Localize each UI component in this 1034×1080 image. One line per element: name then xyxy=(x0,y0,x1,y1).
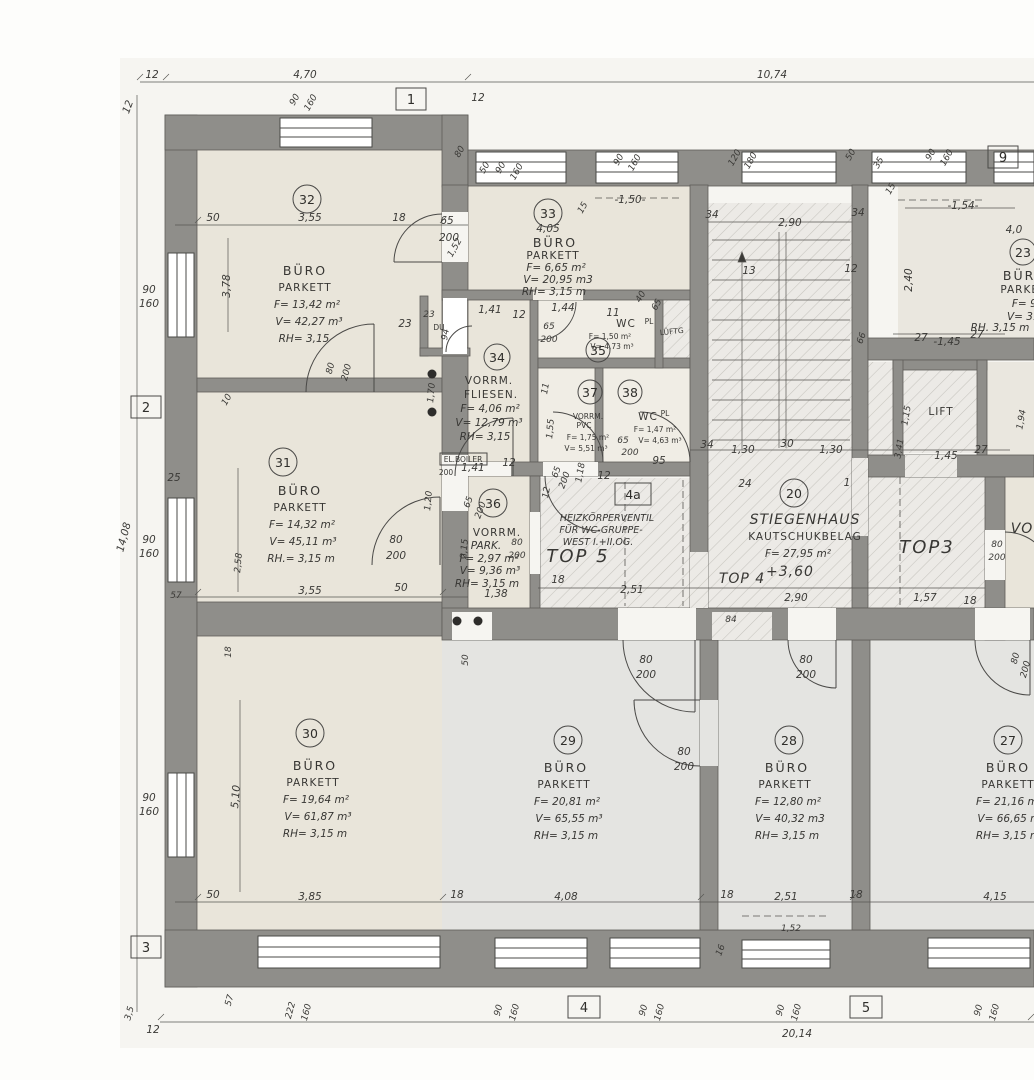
note-line: FÜR WC-GRUPPE- xyxy=(559,525,643,536)
dim-label: -1,50- xyxy=(615,194,646,206)
room-volume: V= 42,27 m³ xyxy=(275,316,342,328)
dim-label: 4,08 xyxy=(554,891,578,903)
door-size-label: 200 xyxy=(988,553,1005,563)
dim-label: 12 xyxy=(597,470,611,482)
room-volume: V= 4,63 m³ xyxy=(638,436,681,445)
room-number: 34 xyxy=(489,350,505,365)
room-area: F= 21,16 m² xyxy=(976,796,1034,808)
boiler-size: 200 xyxy=(439,468,454,477)
dim-label: 57 xyxy=(170,591,182,601)
dim-label: 2,90 xyxy=(778,217,802,229)
room-floor: PVC xyxy=(577,421,592,430)
dim-label: 24 xyxy=(738,478,751,490)
dim-label: 34 xyxy=(705,209,718,221)
room-volume: V= 40,32 m3 xyxy=(755,813,825,825)
dim-label: -1,54- xyxy=(948,200,979,212)
dim-label: 23 xyxy=(423,310,435,320)
dim-label: 84 xyxy=(725,615,737,625)
room-area: F= 1,75 m² xyxy=(567,433,609,442)
dim-label: 13 xyxy=(742,265,755,277)
room-name: BÜRO xyxy=(765,759,809,775)
room-volume: V= 4,73 m³ xyxy=(590,342,633,351)
dim-label: 3,85 xyxy=(298,891,322,903)
room-name: BÜRO xyxy=(283,262,327,278)
room-volume: V= 45,11 m³ xyxy=(269,536,336,548)
note-line: WEST I.+II.OG. xyxy=(563,537,634,548)
room-number: 37 xyxy=(582,385,598,400)
room-height: RH= 3,15 m xyxy=(283,828,347,840)
room-volume: V= 61,87 m³ xyxy=(284,811,351,823)
dim-label: 1,30 xyxy=(731,444,755,456)
room-floor: PARKETT xyxy=(981,779,1034,791)
room-name: VORRM. xyxy=(573,412,603,421)
window xyxy=(280,118,372,147)
room-area: F= 4,06 m² xyxy=(460,403,520,415)
door-size-label: 80 xyxy=(991,540,1003,550)
room-name: BÜRO xyxy=(986,759,1030,775)
grid-number: 1 xyxy=(407,93,415,108)
dim-label: 2,51 xyxy=(620,584,643,596)
dim-label: 18 xyxy=(224,646,234,658)
grid-number: 9 xyxy=(999,151,1007,166)
window xyxy=(610,938,700,968)
dim-label: 3,55 xyxy=(298,585,322,597)
door-size-label: 80 xyxy=(799,654,813,666)
door-size-label: 80 xyxy=(677,746,691,758)
room-number: 28 xyxy=(781,733,797,748)
door-size-label: 200 xyxy=(796,669,816,681)
dim-label: 4,70 xyxy=(293,69,317,81)
grid-number: 4 xyxy=(580,1001,588,1016)
window-size-label: 90 xyxy=(142,792,156,804)
dim-label: 3,55 xyxy=(298,212,322,224)
room-floor: PARKETT xyxy=(758,779,811,791)
window xyxy=(495,938,587,968)
dim-label: 18 xyxy=(551,574,565,586)
room-area: F= 9, xyxy=(1012,298,1034,310)
dim-label: 23 xyxy=(398,318,411,330)
dim-label: 34 xyxy=(851,207,864,219)
floor-plan-page: 12 4,70 10,74 12 90 160 12 80 50 90 160 … xyxy=(0,0,1034,1080)
room-volume: V= 66,65 m³ xyxy=(977,813,1034,825)
boiler-text: EL.BOILER xyxy=(444,455,483,464)
room-name: VORRM. xyxy=(473,527,521,539)
room-area: F= 2,97 m² xyxy=(459,553,519,565)
dim-label: 1,70 xyxy=(426,382,438,403)
dim-label: -1,45 xyxy=(933,336,960,348)
room-floor: PARKETT xyxy=(1000,284,1034,296)
dim-label: 50 xyxy=(206,212,220,224)
dim-label: 27 xyxy=(914,332,928,344)
dim-label: 1,30 xyxy=(819,444,843,456)
room-height: RH= 3,15 m xyxy=(522,286,586,298)
dim-label: 2,40 xyxy=(903,268,915,292)
window-size-label: 160 xyxy=(139,548,159,560)
room-area: F= 27,95 m² xyxy=(765,548,832,560)
level-label: +3,60 xyxy=(766,564,814,580)
window-size-label: 90 xyxy=(142,284,156,296)
door-size-label: 200 xyxy=(540,335,557,345)
dim-label: 95 xyxy=(652,455,666,467)
room-name: BÜRO xyxy=(293,757,337,773)
room-floor: PARKETT xyxy=(273,502,326,514)
dim-label: 12 xyxy=(541,486,553,499)
note-line: HEIZKÖRPERVENTIL xyxy=(560,513,654,524)
room-floor: PARKETT xyxy=(286,777,339,789)
room-volume: V= 12,79 m³ xyxy=(455,417,522,429)
room-number: 36 xyxy=(485,496,501,511)
dim-label: 12 xyxy=(512,309,526,321)
door-size-label: 65 xyxy=(543,322,555,332)
dim-label: 50 xyxy=(461,654,471,666)
room-area: F= 12,80 m² xyxy=(755,796,822,808)
room-floor: PL xyxy=(661,409,671,418)
dim-label: 18 xyxy=(963,595,977,607)
room-height: RH= 3,15 m xyxy=(976,830,1034,842)
door-size-label: 80 xyxy=(511,538,523,548)
dim-label: 12 xyxy=(145,69,159,81)
room-area: F= 14,32 m² xyxy=(269,519,336,531)
room-volume: V= 9,36 m³ xyxy=(460,565,520,577)
window xyxy=(742,940,830,968)
dim-label: 18 xyxy=(392,212,406,224)
room-number: 29 xyxy=(560,733,576,748)
room-floor: PL xyxy=(645,317,655,326)
dim-label: 4,0 xyxy=(1006,224,1023,236)
door-size-label: 200 xyxy=(636,669,656,681)
room-name: BÜRO xyxy=(1003,267,1034,283)
door-size-label: 65 xyxy=(440,215,454,227)
room-height: RH.= 3,15 m xyxy=(267,553,335,565)
room-height: RH= 3,15 m xyxy=(755,830,819,842)
window-size-label: 160 xyxy=(139,298,159,310)
window xyxy=(168,773,194,857)
dim-label: 1,55 xyxy=(545,418,557,439)
door-size-label: 65 xyxy=(617,436,629,446)
dim-label: 18 xyxy=(849,889,863,901)
dim-label: 12 xyxy=(502,457,516,469)
room-name: VORRM. xyxy=(465,375,513,387)
dim-label: 50 xyxy=(206,889,220,901)
grid-number: 2 xyxy=(142,401,150,416)
dim-label: 18 xyxy=(450,889,464,901)
room-volume: V= 65,55 m³ xyxy=(535,813,602,825)
room-volume: V= 20,95 m3 xyxy=(523,274,593,286)
dim-label: 1,20 xyxy=(423,490,435,511)
dim-label: 12 xyxy=(844,263,858,275)
room-floor: KAUTSCHUKBELAG xyxy=(748,531,862,543)
room-area: F= 6,65 m² xyxy=(526,262,586,274)
door-size-label: 80 xyxy=(639,654,653,666)
dim-label: 1,57 xyxy=(913,592,937,604)
room-number: 30 xyxy=(302,726,318,741)
dim-label: 18 xyxy=(720,889,734,901)
room-area: F= 1,50 m² xyxy=(589,332,631,341)
room-area: F= 19,64 m² xyxy=(283,794,350,806)
dim-label: 2,90 xyxy=(784,592,808,604)
area-top3-label: TOP3 xyxy=(899,537,954,558)
room-name: STIEGENHAUS xyxy=(750,512,861,528)
dim-label: 50 xyxy=(394,582,408,594)
window xyxy=(168,253,194,337)
grid-number: 5 xyxy=(862,1001,870,1016)
floor-plan-svg: 12 4,70 10,74 12 90 160 12 80 50 90 160 … xyxy=(0,0,1034,1080)
dim-label: 20,14 xyxy=(782,1028,812,1040)
window xyxy=(928,938,1030,968)
dim-label: 1,52 xyxy=(781,924,801,934)
room-floor: FLIESEN. xyxy=(464,389,518,401)
room-area: F= 13,42 m² xyxy=(274,299,341,311)
room-area: F= 1,47 m² xyxy=(634,425,676,434)
dim-label: 34 xyxy=(700,439,713,451)
room-floor: PARKETT xyxy=(537,779,590,791)
dim-label: 1 xyxy=(844,477,851,489)
window xyxy=(168,498,194,582)
dim-label: 1,44 xyxy=(551,302,574,314)
room-number: 33 xyxy=(540,206,556,221)
grid-number: 3 xyxy=(142,941,150,956)
door-size-label: 200 xyxy=(621,448,638,458)
room-volume: V= 5,51 m³ xyxy=(564,444,607,453)
dim-label: 10,74 xyxy=(757,69,787,81)
door-size-label: 80 xyxy=(389,534,403,546)
room-name: BÜRO xyxy=(544,759,588,775)
dim-label: 3,78 xyxy=(221,274,233,298)
area-top4-label: TOP 4 xyxy=(719,571,765,587)
room-name: BÜRO xyxy=(533,234,577,250)
dim-label: 12 xyxy=(471,92,485,104)
dim-label: 27 xyxy=(974,444,988,456)
dim-label: 1,41 xyxy=(478,304,501,316)
room-floor: PARKETT xyxy=(526,250,579,262)
room-number: 31 xyxy=(275,455,291,470)
door-size-label: 200 xyxy=(386,550,406,562)
note-tag: 4a xyxy=(625,487,641,502)
room-height: RH= 3,15 xyxy=(279,333,330,345)
room-height: RH= 3,15 m xyxy=(534,830,598,842)
dim-label: 5,10 xyxy=(229,784,243,809)
shower-label: DU xyxy=(433,323,444,332)
room-floor: PARKETT xyxy=(278,282,331,294)
dim-label: 12 xyxy=(146,1024,160,1036)
room-height: RH. 3,15 m xyxy=(971,322,1030,334)
window-size-label: 90 xyxy=(142,534,156,546)
room-height: RH= 3,15 xyxy=(460,431,511,443)
room-name: WC xyxy=(638,411,658,423)
dim-label: 30 xyxy=(780,438,794,450)
room-floor: PARK. xyxy=(471,540,502,552)
area-l: LIFT xyxy=(928,406,953,418)
window-size-label: 160 xyxy=(139,806,159,818)
room-number: 38 xyxy=(622,385,638,400)
dim-label: 11 xyxy=(540,382,552,395)
window xyxy=(258,936,440,968)
door-size-label: 200 xyxy=(674,761,694,773)
room-name: BÜRO xyxy=(278,482,322,498)
room-number: 20 xyxy=(786,486,802,501)
room-number: 23 xyxy=(1015,245,1031,260)
room-name: WC xyxy=(616,318,636,330)
room-number: 27 xyxy=(1000,733,1016,748)
area-top5-label: TOP 5 xyxy=(546,546,609,567)
dim-label: 1,45 xyxy=(934,450,958,462)
dim-label: 25 xyxy=(167,472,181,484)
dim-label: 4,15 xyxy=(983,891,1007,903)
room-number: 32 xyxy=(299,192,315,207)
room-area: F= 20,81 m² xyxy=(534,796,601,808)
room-height: RH= 3,15 m xyxy=(455,578,519,590)
area-vo-label: VO xyxy=(1011,521,1034,537)
dim-label: 2,58 xyxy=(233,552,245,573)
dim-label: 2,51 xyxy=(774,891,797,903)
